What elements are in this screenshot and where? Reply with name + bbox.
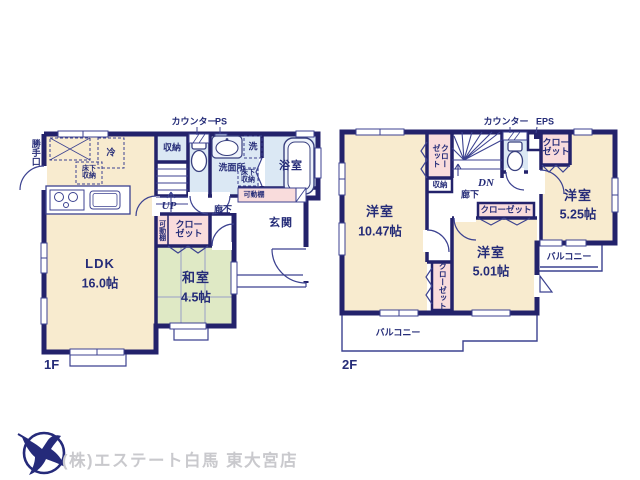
- label-floor2: 2F: [342, 358, 357, 372]
- label-ldk-size: 16.0帖: [82, 277, 119, 290]
- label-counter-2f: カウンター: [483, 117, 528, 126]
- kitchen-sink-icon: [90, 191, 120, 209]
- label-yoshitsu-c-size: 5.25帖: [560, 208, 597, 221]
- label-closet-nw: クローゼット: [432, 142, 449, 170]
- label-kadodana-h: 可動棚: [244, 191, 265, 198]
- label-ldk-name: LDK: [85, 257, 115, 271]
- label-closet-south: クローゼット: [480, 206, 531, 215]
- label-yoshitsu-a-size: 10.47帖: [358, 225, 402, 238]
- label-underfloor-senmen: 床下収納: [241, 170, 256, 185]
- counter-hatch-1f: [189, 134, 209, 143]
- label-refrigerator: 冷: [106, 148, 115, 157]
- label-stairs-up: UP: [162, 201, 177, 213]
- company-name: (株)エステート白馬 東大宮店: [62, 447, 298, 471]
- label-underfloor-kitchen: 床下収納: [82, 166, 97, 181]
- label-yoshitsu-c-name: 洋室: [564, 189, 592, 203]
- label-washer: 洗: [248, 142, 257, 151]
- label-closet-1f: クローゼット: [174, 221, 204, 240]
- label-balcony-bottom: バルコニー: [376, 328, 421, 337]
- label-yokushitsu: 浴室: [279, 161, 303, 173]
- label-closet-mid: クローゼット: [438, 261, 446, 311]
- label-roka-1f: 廊下: [214, 205, 232, 214]
- hakuba-logo: [18, 433, 65, 475]
- toilet-icon-2f: [508, 142, 523, 171]
- label-yoshitsu-b-name: 洋室: [477, 246, 505, 260]
- label-closet-ne: クローゼット: [541, 139, 571, 158]
- floor2-room-fills: [342, 132, 615, 313]
- label-floor1: 1F: [44, 358, 59, 372]
- label-back-door: 勝手口: [30, 137, 39, 167]
- toilet-icon-1f: [192, 140, 207, 172]
- label-shuno-2f: 収納: [433, 181, 448, 189]
- label-ps: PS: [215, 117, 227, 126]
- label-yoshitsu-a-name: 洋室: [366, 205, 394, 219]
- floorplan-page: 勝手口 カウンター PS 収納 冷 床下収納 洗 洗面所 浴室 床下収納 可動棚…: [0, 0, 640, 480]
- label-shuno-1f: 収納: [163, 143, 181, 152]
- label-washitsu-name: 和室: [182, 271, 210, 285]
- label-counter-1f: カウンター: [171, 117, 216, 126]
- label-eps: EPS: [536, 117, 554, 126]
- eps-shaft: [534, 133, 540, 139]
- vanity-sink-icon: [212, 136, 242, 158]
- stove-icon: [50, 190, 84, 210]
- label-kadodana-v: 可動棚: [158, 218, 165, 242]
- label-roka-2f: 廊下: [461, 190, 479, 199]
- label-balcony-right: バルコニー: [547, 252, 592, 261]
- floorplan-geometry: [0, 0, 640, 480]
- label-stairs-down: DN: [478, 178, 494, 190]
- label-washitsu-size: 4.5帖: [181, 291, 211, 304]
- stairs-down-icon: [452, 132, 502, 176]
- label-yoshitsu-b-size: 5.01帖: [473, 265, 510, 278]
- label-genkan: 玄関: [269, 218, 293, 230]
